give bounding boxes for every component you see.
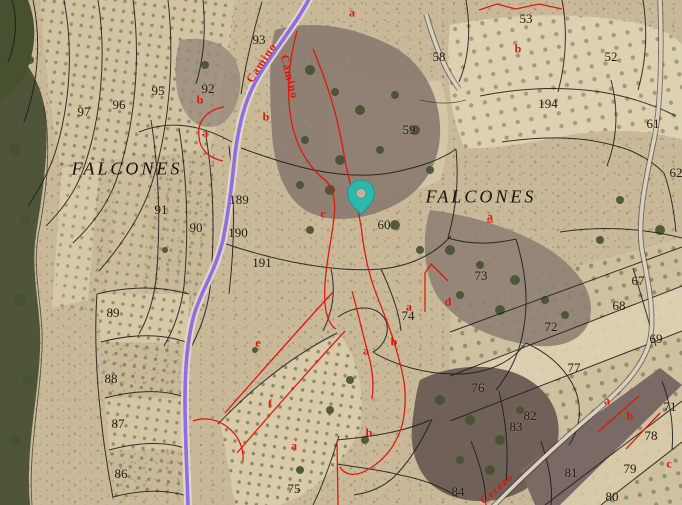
subparcel-letter: b: [391, 335, 398, 350]
place-label: FALCONES: [426, 187, 537, 208]
subparcel-letter: c: [666, 457, 671, 472]
parcel-number: 76: [472, 380, 485, 396]
parcel-number: 59: [403, 122, 416, 138]
subparcel-letter: b: [515, 42, 522, 57]
location-marker-pin[interactable]: [346, 179, 376, 216]
parcel-number: 86: [115, 466, 128, 482]
subparcel-letter: b: [627, 409, 634, 424]
parcel-number: 78: [645, 428, 658, 444]
parcel-number: 93: [253, 32, 266, 48]
parcel-number: 96: [113, 97, 126, 113]
parcel-number: 95: [152, 83, 165, 99]
parcel-number: 62: [670, 165, 682, 181]
parcel-number: 87: [112, 416, 125, 432]
pin-hole: [356, 188, 366, 198]
parcel-number: 72: [545, 319, 558, 335]
parcel-number: 82: [524, 408, 537, 424]
road-name-label: Camino: [278, 54, 301, 101]
parcel-number: 190: [228, 225, 248, 241]
parcel-number: 79: [624, 461, 637, 477]
subparcel-letter: c: [320, 207, 325, 222]
subparcel-letter: a: [363, 344, 369, 359]
subparcel-letter: a: [406, 300, 412, 315]
subparcel-letter: b: [366, 426, 373, 441]
map-labels-layer: FALCONESFALCONES939796959253585219461596…: [0, 0, 682, 505]
road-name-label: Cerezo: [478, 471, 516, 505]
parcel-number: 60: [378, 217, 391, 233]
subparcel-letter: b: [197, 93, 204, 108]
subparcel-letter: a: [604, 394, 610, 409]
parcel-number: 52: [605, 49, 618, 65]
parcel-number: 90: [190, 220, 203, 236]
subparcel-letter: e: [255, 336, 260, 351]
subparcel-letter: a: [349, 6, 355, 21]
parcel-number: 77: [568, 360, 581, 376]
parcel-number: 53: [520, 11, 533, 27]
subparcel-letter: a: [202, 126, 208, 141]
parcel-number: 89: [107, 305, 120, 321]
parcel-number: 68: [613, 298, 626, 314]
parcel-number: 80: [606, 489, 619, 505]
parcel-number: 84: [452, 484, 465, 500]
subparcel-letter: b: [263, 110, 270, 125]
parcel-number: 91: [155, 202, 168, 218]
parcel-number: 81: [565, 465, 578, 481]
parcel-number: 69: [650, 331, 663, 347]
parcel-number: 83: [510, 419, 523, 435]
place-label: FALCONES: [72, 159, 183, 180]
parcel-number: 189: [229, 192, 249, 208]
subparcel-letter: f: [268, 397, 272, 412]
parcel-number: 71: [664, 399, 677, 415]
cadastral-map-canvas[interactable]: FALCONESFALCONES939796959253585219461596…: [0, 0, 682, 505]
parcel-number: 75: [288, 481, 301, 497]
parcel-number: 58: [433, 49, 446, 65]
parcel-number: 191: [252, 255, 272, 271]
subparcel-letter: a: [487, 210, 493, 225]
parcel-number: 97: [78, 104, 91, 120]
subparcel-letter: a: [291, 439, 297, 454]
subparcel-letter: d: [445, 295, 452, 310]
parcel-number: 73: [475, 268, 488, 284]
parcel-number: 194: [538, 96, 558, 112]
parcel-number: 67: [632, 273, 645, 289]
parcel-number: 61: [647, 116, 660, 132]
parcel-number: 88: [105, 371, 118, 387]
